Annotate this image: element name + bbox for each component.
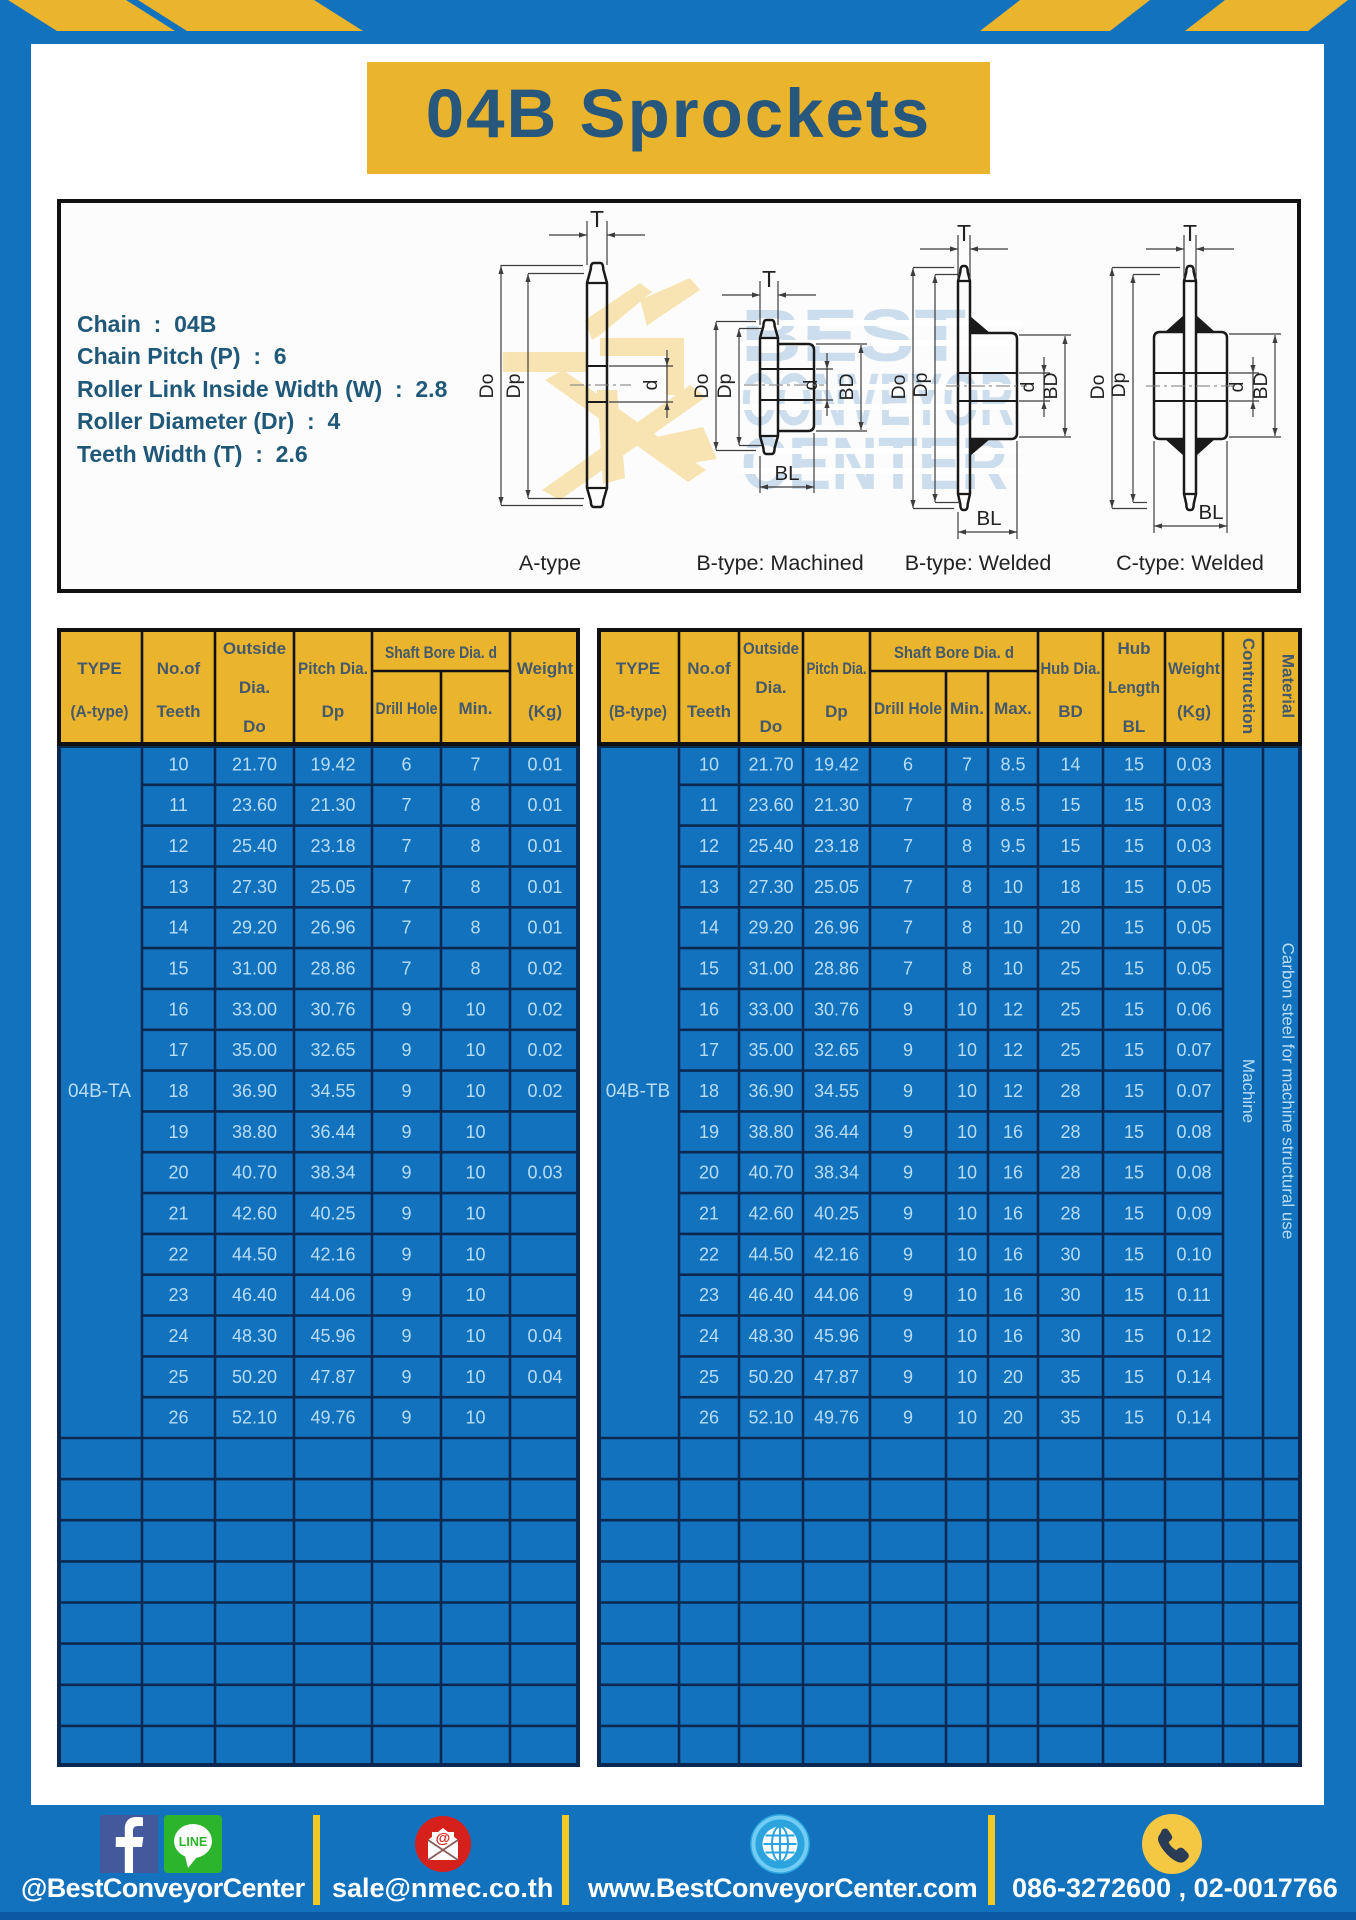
svg-text:0.03: 0.03 (527, 1163, 562, 1183)
svg-text:35.00: 35.00 (748, 1040, 793, 1060)
svg-text:04B-TA: 04B-TA (68, 1081, 131, 1102)
svg-text:38.34: 38.34 (310, 1163, 355, 1183)
svg-text:10: 10 (465, 1163, 485, 1183)
svg-text:10: 10 (957, 1204, 977, 1224)
svg-text:28.86: 28.86 (310, 959, 355, 979)
svg-text:7: 7 (401, 877, 411, 897)
svg-text:T: T (590, 206, 604, 232)
svg-text:24: 24 (168, 1326, 188, 1346)
svg-text:16: 16 (168, 999, 188, 1019)
svg-text:10: 10 (465, 1367, 485, 1387)
svg-text:Carbon steel for machine struc: Carbon steel for machine structural use (1279, 943, 1298, 1240)
svg-text:32.65: 32.65 (814, 1040, 859, 1060)
svg-text:BD: BD (836, 373, 858, 400)
svg-text:28: 28 (1060, 1122, 1080, 1142)
svg-text:Dia.: Dia. (239, 678, 270, 697)
svg-text:16: 16 (1003, 1326, 1023, 1346)
svg-text:38.34: 38.34 (814, 1163, 859, 1183)
svg-text:18: 18 (168, 1081, 188, 1101)
svg-text:21.30: 21.30 (814, 795, 859, 815)
svg-text:8: 8 (470, 918, 480, 938)
svg-text:Dp: Dp (1108, 372, 1130, 397)
svg-text:7: 7 (401, 918, 411, 938)
svg-text:8.5: 8.5 (1000, 754, 1025, 774)
svg-text:T: T (957, 220, 971, 246)
svg-text:25: 25 (699, 1367, 719, 1387)
svg-text:10: 10 (957, 1285, 977, 1305)
svg-text:15: 15 (1124, 1326, 1144, 1346)
svg-text:36.90: 36.90 (232, 1081, 277, 1101)
svg-text:34.55: 34.55 (814, 1081, 859, 1101)
svg-text:7: 7 (401, 959, 411, 979)
svg-text:0.11: 0.11 (1177, 1285, 1211, 1305)
svg-text:28: 28 (1060, 1163, 1080, 1183)
svg-text:10: 10 (957, 1367, 977, 1387)
svg-text:33.00: 33.00 (748, 999, 793, 1019)
svg-text:42.16: 42.16 (814, 1244, 859, 1264)
svg-text:20: 20 (1060, 918, 1080, 938)
svg-text:30: 30 (1060, 1244, 1080, 1264)
svg-text:Max.: Max. (994, 699, 1032, 718)
svg-text:Dp: Dp (503, 373, 525, 398)
svg-text:9: 9 (903, 1163, 913, 1183)
svg-text:18: 18 (1060, 877, 1080, 897)
svg-text:Weight: Weight (1168, 659, 1220, 678)
svg-text:0.09: 0.09 (1176, 1204, 1211, 1224)
svg-text:10: 10 (465, 1040, 485, 1060)
svg-text:7: 7 (903, 918, 913, 938)
svg-text:9: 9 (401, 1122, 411, 1142)
svg-text:9: 9 (903, 1081, 913, 1101)
svg-text:15: 15 (1124, 1163, 1144, 1183)
svg-text:Min.: Min. (459, 699, 493, 718)
svg-text:25.40: 25.40 (748, 836, 793, 856)
svg-text:8.5: 8.5 (1000, 795, 1025, 815)
svg-text:Do: Do (1087, 374, 1109, 399)
svg-text:15: 15 (1124, 795, 1144, 815)
svg-text:18: 18 (699, 1081, 719, 1101)
svg-text:7: 7 (903, 795, 913, 815)
svg-text:9: 9 (401, 1408, 411, 1428)
svg-text:A-type: A-type (519, 551, 581, 575)
svg-text:8: 8 (470, 795, 480, 815)
svg-text:BL: BL (774, 462, 799, 485)
svg-text:29.20: 29.20 (232, 918, 277, 938)
svg-text:35: 35 (1060, 1367, 1080, 1387)
svg-text:8: 8 (962, 795, 972, 815)
svg-text:Drill Hole: Drill Hole (376, 699, 438, 718)
svg-text:21.30: 21.30 (310, 795, 355, 815)
svg-text:0.02: 0.02 (527, 1081, 562, 1101)
svg-text:16: 16 (699, 999, 719, 1019)
svg-text:13: 13 (168, 877, 188, 897)
svg-text:7: 7 (903, 877, 913, 897)
svg-text:(Kg): (Kg) (1177, 702, 1211, 721)
svg-text:46.40: 46.40 (748, 1285, 793, 1305)
svg-text:10: 10 (465, 999, 485, 1019)
svg-text:No.of: No.of (157, 659, 201, 678)
svg-text:34.55: 34.55 (310, 1081, 355, 1101)
svg-text:26.96: 26.96 (310, 918, 355, 938)
svg-text:0.05: 0.05 (1176, 959, 1211, 979)
svg-text:d: d (1017, 382, 1039, 393)
svg-text:26: 26 (168, 1408, 188, 1428)
svg-text:15: 15 (1124, 918, 1144, 938)
svg-text:8: 8 (962, 959, 972, 979)
svg-text:Do: Do (888, 374, 910, 399)
svg-text:36.44: 36.44 (310, 1122, 355, 1142)
svg-text:B-type: Welded: B-type: Welded (905, 551, 1052, 575)
svg-text:26: 26 (699, 1408, 719, 1428)
svg-text:15: 15 (1060, 836, 1080, 856)
svg-text:8: 8 (470, 836, 480, 856)
svg-text:Contruction: Contruction (1239, 638, 1258, 734)
svg-text:8: 8 (470, 877, 480, 897)
svg-text:9: 9 (401, 1367, 411, 1387)
svg-text:0.02: 0.02 (527, 959, 562, 979)
svg-text:TYPE: TYPE (616, 659, 660, 678)
svg-text:35.00: 35.00 (232, 1040, 277, 1060)
svg-text:25: 25 (1060, 999, 1080, 1019)
svg-text:10: 10 (168, 754, 188, 774)
svg-text:Dp: Dp (322, 702, 345, 721)
svg-text:52.10: 52.10 (232, 1408, 277, 1428)
svg-text:47.87: 47.87 (814, 1367, 859, 1387)
svg-text:10: 10 (957, 1122, 977, 1142)
svg-text:42.60: 42.60 (232, 1204, 277, 1224)
svg-text:Length: Length (1108, 678, 1160, 697)
svg-text:29.20: 29.20 (748, 918, 793, 938)
svg-text:42.16: 42.16 (310, 1244, 355, 1264)
svg-text:Dp: Dp (910, 372, 932, 397)
svg-text:12: 12 (168, 836, 188, 856)
svg-text:6: 6 (401, 754, 411, 774)
svg-text:10: 10 (957, 999, 977, 1019)
svg-text:Do: Do (760, 717, 783, 736)
svg-text:48.30: 48.30 (232, 1326, 277, 1346)
svg-text:Teeth: Teeth (156, 702, 200, 721)
svg-text:31.00: 31.00 (232, 959, 277, 979)
svg-text:10: 10 (699, 754, 719, 774)
svg-text:25: 25 (1060, 959, 1080, 979)
svg-text:31.00: 31.00 (748, 959, 793, 979)
svg-text:15: 15 (699, 959, 719, 979)
svg-text:19: 19 (168, 1122, 188, 1142)
svg-text:17: 17 (168, 1040, 188, 1060)
svg-text:45.96: 45.96 (310, 1326, 355, 1346)
svg-text:32.65: 32.65 (310, 1040, 355, 1060)
svg-text:27.30: 27.30 (232, 877, 277, 897)
svg-text:46.40: 46.40 (232, 1285, 277, 1305)
svg-text:BD: BD (1058, 702, 1083, 721)
svg-text:38.80: 38.80 (748, 1122, 793, 1142)
svg-text:16: 16 (1003, 1204, 1023, 1224)
svg-text:7: 7 (903, 959, 913, 979)
svg-text:9: 9 (903, 1408, 913, 1428)
svg-text:16: 16 (1003, 1285, 1023, 1305)
svg-text:Shaft Bore Dia. d: Shaft Bore Dia. d (894, 643, 1014, 662)
svg-text:21: 21 (699, 1204, 719, 1224)
svg-text:(A-type): (A-type) (71, 702, 129, 721)
svg-text:Dp: Dp (714, 373, 736, 398)
svg-text:15: 15 (1124, 1408, 1144, 1428)
svg-text:35: 35 (1060, 1408, 1080, 1428)
svg-text:9: 9 (401, 1244, 411, 1264)
svg-text:42.60: 42.60 (748, 1204, 793, 1224)
svg-text:0.08: 0.08 (1176, 1122, 1211, 1142)
svg-text:d: d (800, 380, 822, 391)
svg-text:44.06: 44.06 (814, 1285, 859, 1305)
svg-text:23: 23 (699, 1285, 719, 1305)
svg-text:49.76: 49.76 (310, 1408, 355, 1428)
svg-text:19.42: 19.42 (814, 754, 859, 774)
svg-text:50.20: 50.20 (748, 1367, 793, 1387)
svg-text:Do: Do (691, 373, 713, 398)
svg-text:0.05: 0.05 (1176, 918, 1211, 938)
svg-text:20: 20 (1003, 1367, 1023, 1387)
svg-text:TYPE: TYPE (77, 659, 121, 678)
svg-text:C-type: Welded: C-type: Welded (1116, 551, 1264, 575)
svg-text:40.25: 40.25 (814, 1204, 859, 1224)
svg-text:10: 10 (465, 1326, 485, 1346)
svg-text:17: 17 (699, 1040, 719, 1060)
svg-text:Machine: Machine (1239, 1059, 1258, 1123)
svg-text:10: 10 (1003, 959, 1023, 979)
svg-text:36.44: 36.44 (814, 1122, 859, 1142)
svg-text:7: 7 (470, 754, 480, 774)
svg-text:Outside: Outside (743, 639, 799, 658)
svg-text:9: 9 (401, 1326, 411, 1346)
svg-text:0.08: 0.08 (1176, 1163, 1211, 1183)
svg-text:0.01: 0.01 (527, 918, 562, 938)
svg-text:0.12: 0.12 (1176, 1326, 1211, 1346)
svg-text:9: 9 (903, 1244, 913, 1264)
svg-text:0.03: 0.03 (1176, 754, 1211, 774)
svg-text:8: 8 (962, 918, 972, 938)
svg-text:11: 11 (700, 795, 719, 815)
svg-text:@: @ (436, 1830, 451, 1847)
svg-text:12: 12 (699, 836, 719, 856)
svg-text:BL: BL (976, 507, 1001, 530)
svg-text:30: 30 (1060, 1285, 1080, 1305)
svg-text:10: 10 (465, 1408, 485, 1428)
svg-text:15: 15 (1124, 1367, 1144, 1387)
svg-text:21.70: 21.70 (232, 754, 277, 774)
svg-text:Pitch Dia.: Pitch Dia. (298, 659, 368, 678)
svg-text:T: T (762, 266, 776, 292)
svg-text:8: 8 (962, 877, 972, 897)
svg-text:9: 9 (401, 1040, 411, 1060)
svg-text:14: 14 (699, 918, 719, 938)
svg-text:9: 9 (401, 1285, 411, 1305)
svg-text:44.50: 44.50 (232, 1244, 277, 1264)
svg-text:47.87: 47.87 (310, 1367, 355, 1387)
svg-text:10: 10 (465, 1122, 485, 1142)
svg-text:Outside: Outside (223, 639, 286, 658)
svg-text:9: 9 (401, 1163, 411, 1183)
svg-text:40.70: 40.70 (232, 1163, 277, 1183)
svg-text:Pitch Dia.: Pitch Dia. (807, 659, 867, 678)
svg-text:0.02: 0.02 (527, 999, 562, 1019)
svg-text:14: 14 (1060, 754, 1080, 774)
svg-text:23.18: 23.18 (814, 836, 859, 856)
svg-text:9.5: 9.5 (1000, 836, 1025, 856)
svg-text:Min.: Min. (950, 699, 984, 718)
svg-text:15: 15 (1124, 1244, 1144, 1264)
svg-text:0.14: 0.14 (1176, 1367, 1211, 1387)
svg-text:8: 8 (470, 959, 480, 979)
svg-text:7: 7 (401, 795, 411, 815)
svg-text:Teeth: Teeth (687, 702, 731, 721)
svg-text:19.42: 19.42 (310, 754, 355, 774)
svg-text:9: 9 (903, 1040, 913, 1060)
svg-text:30.76: 30.76 (814, 999, 859, 1019)
svg-text:10: 10 (957, 1040, 977, 1060)
svg-text:(Kg): (Kg) (528, 702, 562, 721)
svg-text:40.70: 40.70 (748, 1163, 793, 1183)
svg-text:8: 8 (962, 836, 972, 856)
svg-text:28.86: 28.86 (814, 959, 859, 979)
svg-text:10: 10 (957, 1081, 977, 1101)
svg-text:15: 15 (1124, 1122, 1144, 1142)
svg-text:Material: Material (1279, 654, 1298, 718)
svg-text:27.30: 27.30 (748, 877, 793, 897)
svg-text:15: 15 (1124, 959, 1144, 979)
svg-text:10: 10 (957, 1326, 977, 1346)
svg-text:Hub: Hub (1117, 639, 1150, 658)
svg-text:0.01: 0.01 (527, 754, 562, 774)
svg-text:0.01: 0.01 (527, 795, 562, 815)
svg-text:25.40: 25.40 (232, 836, 277, 856)
svg-text:22: 22 (168, 1244, 188, 1264)
svg-text:15: 15 (1124, 1040, 1144, 1060)
svg-text:30.76: 30.76 (310, 999, 355, 1019)
svg-text:9: 9 (903, 1326, 913, 1346)
svg-text:20: 20 (168, 1163, 188, 1183)
svg-text:Do: Do (243, 717, 266, 736)
svg-text:d: d (640, 380, 662, 391)
svg-text:10: 10 (1003, 918, 1023, 938)
svg-text:23.60: 23.60 (748, 795, 793, 815)
svg-text:10: 10 (465, 1081, 485, 1101)
svg-text:No.of: No.of (687, 659, 731, 678)
svg-text:7: 7 (401, 836, 411, 856)
svg-text:16: 16 (1003, 1122, 1023, 1142)
svg-text:Hub Dia.: Hub Dia. (1041, 659, 1101, 678)
svg-text:15: 15 (1124, 1285, 1144, 1305)
svg-text:15: 15 (168, 959, 188, 979)
svg-text:7: 7 (962, 754, 972, 774)
svg-text:21.70: 21.70 (748, 754, 793, 774)
svg-text:19: 19 (699, 1122, 719, 1142)
svg-text:0.07: 0.07 (1176, 1081, 1211, 1101)
svg-text:LINE: LINE (179, 1835, 207, 1849)
svg-text:Dp: Dp (825, 702, 848, 721)
svg-text:BL: BL (1198, 501, 1223, 524)
svg-text:20: 20 (1003, 1408, 1023, 1428)
svg-text:50.20: 50.20 (232, 1367, 277, 1387)
svg-text:0.03: 0.03 (1176, 836, 1211, 856)
svg-text:12: 12 (1003, 1040, 1023, 1060)
svg-text:21: 21 (168, 1204, 188, 1224)
svg-text:40.25: 40.25 (310, 1204, 355, 1224)
svg-text:04B-TB: 04B-TB (606, 1081, 670, 1102)
svg-text:6: 6 (903, 754, 913, 774)
svg-text:10: 10 (465, 1204, 485, 1224)
svg-text:0.05: 0.05 (1176, 877, 1211, 897)
svg-text:25.05: 25.05 (814, 877, 859, 897)
svg-text:Drill Hole: Drill Hole (874, 699, 942, 718)
svg-text:9: 9 (903, 1367, 913, 1387)
svg-text:23: 23 (168, 1285, 188, 1305)
svg-text:9: 9 (401, 1081, 411, 1101)
svg-text:49.76: 49.76 (814, 1408, 859, 1428)
svg-text:0.04: 0.04 (527, 1326, 562, 1346)
svg-text:d: d (1226, 382, 1248, 393)
svg-text:23.60: 23.60 (232, 795, 277, 815)
svg-text:30: 30 (1060, 1326, 1080, 1346)
svg-text:25.05: 25.05 (310, 877, 355, 897)
svg-text:36.90: 36.90 (748, 1081, 793, 1101)
svg-text:25: 25 (168, 1367, 188, 1387)
svg-text:14: 14 (168, 918, 188, 938)
svg-text:28: 28 (1060, 1081, 1080, 1101)
svg-text:9: 9 (903, 1204, 913, 1224)
svg-text:10: 10 (957, 1244, 977, 1264)
svg-text:0.02: 0.02 (527, 1040, 562, 1060)
svg-text:BD: BD (1040, 372, 1062, 399)
svg-text:BD: BD (1250, 372, 1272, 399)
svg-text:9: 9 (401, 1204, 411, 1224)
svg-text:10: 10 (465, 1285, 485, 1305)
svg-text:24: 24 (699, 1326, 719, 1346)
svg-text:26.96: 26.96 (814, 918, 859, 938)
svg-text:15: 15 (1124, 877, 1144, 897)
svg-text:B-type: Machined: B-type: Machined (696, 551, 863, 575)
svg-text:44.50: 44.50 (748, 1244, 793, 1264)
svg-text:12: 12 (1003, 999, 1023, 1019)
svg-text:0.07: 0.07 (1176, 1040, 1211, 1060)
svg-text:12: 12 (1003, 1081, 1023, 1101)
svg-text:0.14: 0.14 (1176, 1408, 1211, 1428)
svg-text:0.10: 0.10 (1176, 1244, 1211, 1264)
svg-text:15: 15 (1124, 1204, 1144, 1224)
svg-text:15: 15 (1060, 795, 1080, 815)
svg-text:(B-type): (B-type) (609, 702, 667, 721)
svg-text:7: 7 (903, 836, 913, 856)
svg-text:25: 25 (1060, 1040, 1080, 1060)
svg-text:0.04: 0.04 (527, 1367, 562, 1387)
svg-text:16: 16 (1003, 1163, 1023, 1183)
svg-text:Weight: Weight (517, 659, 574, 678)
svg-text:28: 28 (1060, 1204, 1080, 1224)
svg-text:0.01: 0.01 (527, 877, 562, 897)
svg-text:20: 20 (699, 1163, 719, 1183)
svg-text:15: 15 (1124, 1081, 1144, 1101)
svg-text:15: 15 (1124, 754, 1144, 774)
svg-text:22: 22 (699, 1244, 719, 1264)
svg-text:10: 10 (957, 1163, 977, 1183)
svg-text:10: 10 (1003, 877, 1023, 897)
svg-text:0.01: 0.01 (527, 836, 562, 856)
svg-text:T: T (1183, 220, 1197, 246)
svg-text:38.80: 38.80 (232, 1122, 277, 1142)
svg-text:10: 10 (465, 1244, 485, 1264)
svg-text:Shaft Bore Dia. d: Shaft Bore Dia. d (385, 643, 497, 662)
svg-text:44.06: 44.06 (310, 1285, 355, 1305)
svg-text:9: 9 (903, 1285, 913, 1305)
svg-text:23.18: 23.18 (310, 836, 355, 856)
